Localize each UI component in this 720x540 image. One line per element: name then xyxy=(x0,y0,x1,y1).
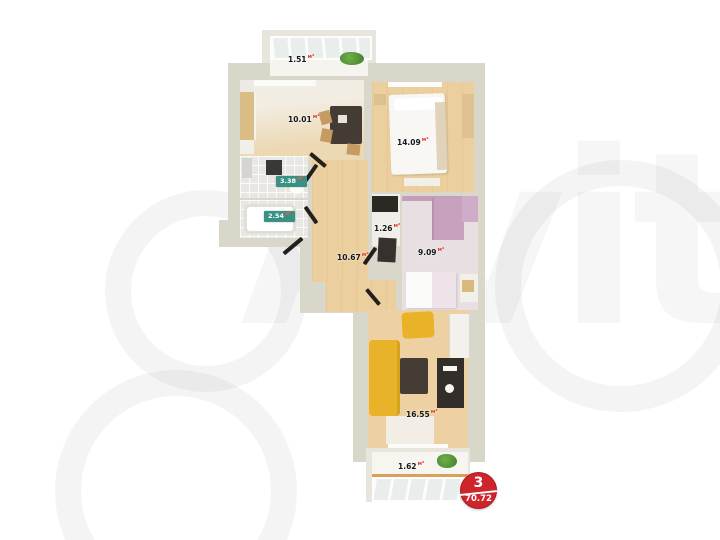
total-area: 70.72 xyxy=(461,495,496,504)
shelving xyxy=(449,314,469,358)
bedroom-bench xyxy=(404,178,440,186)
storage-area-label: 1.26м² xyxy=(374,225,400,233)
rug xyxy=(386,416,434,444)
area-value: 10.01 xyxy=(288,116,312,124)
living-window xyxy=(388,444,448,448)
area-unit: м² xyxy=(297,177,303,182)
area-value: 3.38 xyxy=(280,178,296,185)
dining-table xyxy=(330,106,362,144)
entrance-step-wall xyxy=(219,220,241,247)
rooms-count-badge: 3 70.72 xyxy=(460,472,497,509)
hallway-floor-lower xyxy=(326,280,396,312)
area-unit: м² xyxy=(313,115,320,121)
chair xyxy=(346,143,360,155)
bedroom-area-label: 14.09м² xyxy=(397,139,429,147)
kitchen-window xyxy=(254,80,316,86)
kids-bed-blanket xyxy=(432,272,456,308)
area-value: 2.54 xyxy=(268,213,284,220)
area-unit: м² xyxy=(394,224,401,230)
hallway-area-label: 10.67м² xyxy=(337,254,369,262)
area-value: 1.26 xyxy=(374,225,393,233)
tv xyxy=(443,366,457,371)
balcony-bottom-area-label: 1.62м² xyxy=(398,463,424,471)
balcony-bottom-window xyxy=(372,477,472,502)
kitchen-cabinets xyxy=(240,92,256,140)
area-value: 10.67 xyxy=(337,254,361,262)
living-room-area-label: 16.55м² xyxy=(406,411,438,419)
bedroom-window xyxy=(388,82,442,87)
kitchen-tall-unit xyxy=(240,80,254,92)
kids-wardrobe xyxy=(432,198,464,240)
bathroom-sink xyxy=(242,158,252,178)
storage-desk xyxy=(372,196,398,212)
coffee-table xyxy=(400,358,428,394)
area-unit: м² xyxy=(418,462,425,468)
bathroom-area-label: 3.38м² xyxy=(276,176,307,187)
area-value: 16.55 xyxy=(406,411,430,419)
chair xyxy=(320,128,333,143)
washing-machine xyxy=(266,157,282,175)
area-value: 1.51 xyxy=(288,56,307,64)
hallway-wardrobe xyxy=(377,238,396,263)
kids-panel xyxy=(462,196,478,222)
nightstand xyxy=(374,94,386,105)
area-value: 1.62 xyxy=(398,463,417,471)
balcony-top-area-label: 1.51м² xyxy=(288,56,314,64)
table-setting xyxy=(338,115,347,123)
kitchen-area-label: 10.01м² xyxy=(288,116,320,124)
area-value: 9.09 xyxy=(418,249,437,257)
area-unit: м² xyxy=(422,138,429,144)
area-unit: м² xyxy=(362,253,369,259)
plant-icon xyxy=(340,52,364,65)
kids-room-area-label: 9.09м² xyxy=(418,249,444,257)
bathroom-small-area-label: 2.54м² xyxy=(264,211,295,222)
area-value: 14.09 xyxy=(397,139,421,147)
speaker xyxy=(445,384,454,393)
kitchen-counter xyxy=(240,140,254,154)
armchair xyxy=(401,311,434,339)
area-unit: м² xyxy=(438,248,445,254)
area-unit: м² xyxy=(308,55,315,61)
rooms-count: 3 xyxy=(461,476,496,490)
area-unit: м² xyxy=(285,212,291,217)
area-unit: м² xyxy=(431,410,438,416)
floor-plan-image: Avito xyxy=(0,0,720,540)
hallway-floor xyxy=(312,160,368,282)
plant-icon xyxy=(437,454,457,468)
watermark-circle xyxy=(55,370,297,540)
bed-runner xyxy=(435,102,448,170)
wardrobe xyxy=(462,94,474,138)
sofa xyxy=(369,340,400,416)
kids-chair xyxy=(462,280,474,292)
